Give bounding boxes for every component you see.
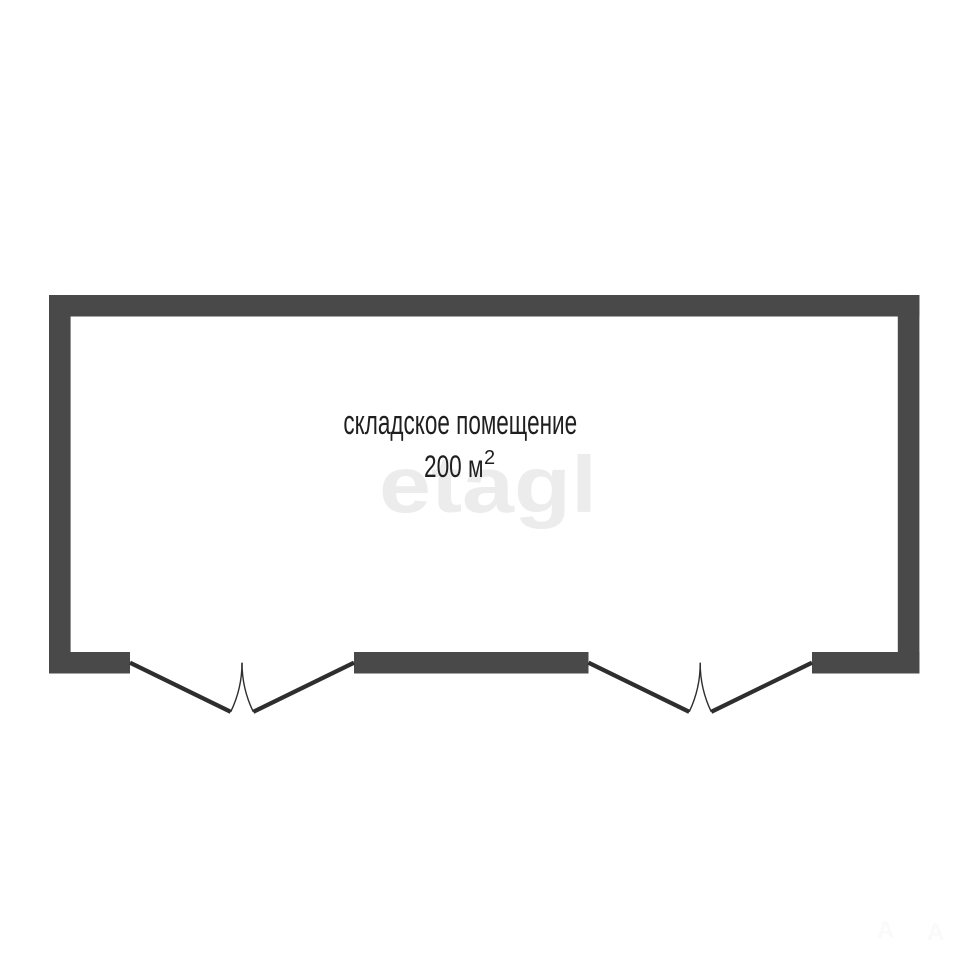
svg-text:A: A [927,919,944,946]
svg-text:A: A [877,917,894,944]
svg-text:200 м: 200 м [424,448,484,484]
svg-text:2: 2 [484,447,495,469]
svg-text:складское помещение: складское помещение [343,404,577,442]
